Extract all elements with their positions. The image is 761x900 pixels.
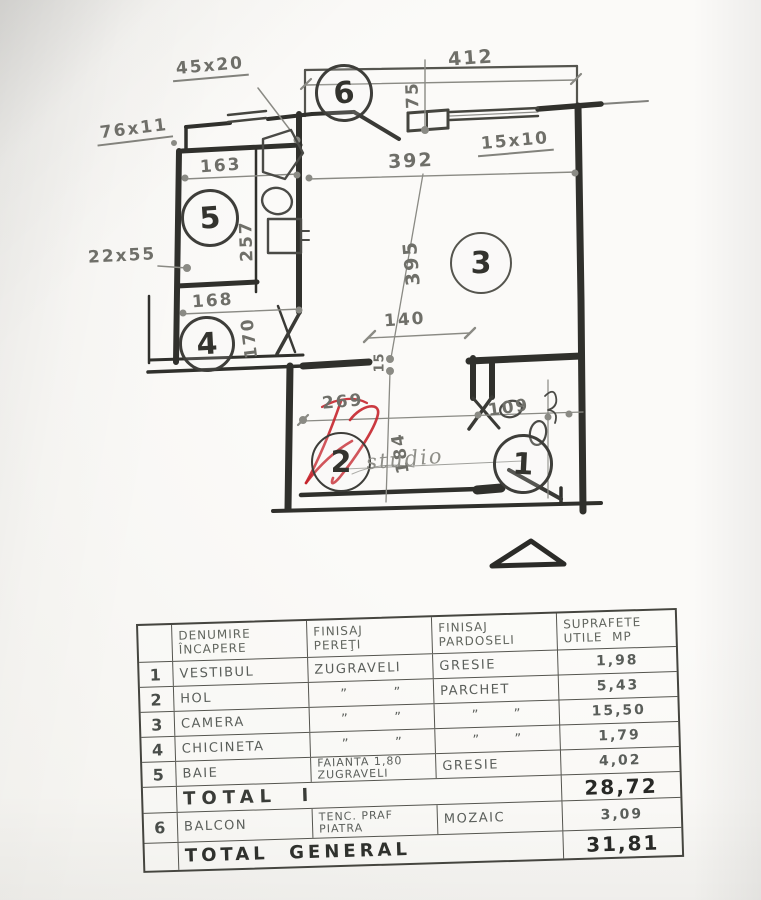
dim-opening-width: 140 <box>383 309 426 332</box>
header-room-name: DENUMIRE ÎNCAPERE <box>172 621 308 661</box>
room-4-number: 4 <box>196 326 219 362</box>
floor-finish: GRESIE <box>433 650 559 678</box>
wall-finish: ” ” <box>310 729 436 757</box>
wall-finish: ” ” <box>310 704 436 732</box>
room-2-badge: 2 <box>311 432 371 492</box>
dim-balcony-width: 412 <box>447 45 494 70</box>
total-general-value: 31,81 <box>563 828 682 858</box>
room-3-badge: 3 <box>450 232 512 294</box>
wall-finish-line2: PIATRA <box>319 822 363 835</box>
wall-finish: ” ” <box>309 679 435 707</box>
row-number: 1 <box>139 662 174 687</box>
dim-balcony-depth: 75 <box>402 81 423 109</box>
dim-wall-thickness: 15 <box>373 352 388 372</box>
area-value: 15,50 <box>559 697 678 724</box>
room-name: HOL <box>174 683 310 711</box>
room-2-number: 2 <box>331 445 352 480</box>
dim-camera-height: 395 <box>399 239 425 286</box>
header-floor-finish: FINISAJ PARDOSELI <box>432 614 558 654</box>
toilet-fixture <box>259 185 294 217</box>
area-value: 5,43 <box>559 672 678 699</box>
header-wall-finish-line2: PEREŢI <box>314 637 362 652</box>
row-number: 5 <box>142 762 177 787</box>
total-1-value: 28,72 <box>562 772 681 800</box>
header-area: SUPRAFETE UTILE MP <box>557 610 676 649</box>
dim-bath-width: 163 <box>199 155 242 178</box>
header-number-col <box>138 625 173 662</box>
paper: 45x20 412 75 76x11 163 392 15x10 257 22x… <box>0 0 761 900</box>
row-number <box>145 843 180 871</box>
room-name: CAMERA <box>175 708 311 736</box>
wall-finish: ZUGRAVELI <box>308 654 434 682</box>
area-value: 3,09 <box>562 798 681 830</box>
room-5-number: 5 <box>198 200 221 236</box>
dim-camera-width: 392 <box>387 149 434 173</box>
room-6-number: 6 <box>332 75 356 112</box>
header-room-name-line2: ÎNCAPERE <box>179 641 247 657</box>
area-value: 4,02 <box>561 747 680 774</box>
floor-finish: PARCHET <box>434 675 560 703</box>
room-1-number: 1 <box>512 446 535 482</box>
floor-finish: ” ” <box>435 700 561 728</box>
row-number: 4 <box>141 737 176 762</box>
header-area-line2: UTILE MP <box>563 629 632 645</box>
area-value: 1,98 <box>558 647 677 674</box>
room-name: BALCON <box>178 809 314 842</box>
header-wall-finish-line1: FINISAJ <box>313 623 363 638</box>
dim-col-22x55: 22x55 <box>88 244 157 268</box>
dim-bath-height: 257 <box>236 220 257 262</box>
room-name: VESTIBUL <box>173 658 309 686</box>
row-number: 6 <box>144 813 179 843</box>
header-floor-finish-line2: PARDOSELI <box>438 633 515 649</box>
row-number <box>143 787 178 813</box>
wall-finish: FAIANTA 1,80 ZUGRAVELI <box>311 754 437 782</box>
header-floor-finish-line1: FINISAJ <box>438 620 488 635</box>
row-number: 3 <box>141 712 176 737</box>
wall-finish: TENC. PRAF PIATRA <box>313 805 439 838</box>
room-name: BAIE <box>176 758 312 786</box>
row-number: 2 <box>140 687 175 712</box>
room-name: CHICINETA <box>175 733 311 761</box>
area-value: 1,79 <box>560 722 679 749</box>
room-3-number: 3 <box>471 246 492 281</box>
floor-finish: MOZAIC <box>438 801 564 834</box>
dim-hol-width: 269 <box>321 390 364 414</box>
header-wall-finish: FINISAJ PEREŢI <box>307 617 433 657</box>
wall-finish-line2: ZUGRAVELI <box>317 768 388 782</box>
north-arrow <box>492 541 564 566</box>
floor-finish: ” ” <box>435 725 561 753</box>
areas-table: DENUMIRE ÎNCAPERE FINISAJ PEREŢI FINISAJ… <box>136 608 684 873</box>
dim-kitch-width: 168 <box>191 290 234 313</box>
floor-finish: GRESIE <box>436 750 562 778</box>
